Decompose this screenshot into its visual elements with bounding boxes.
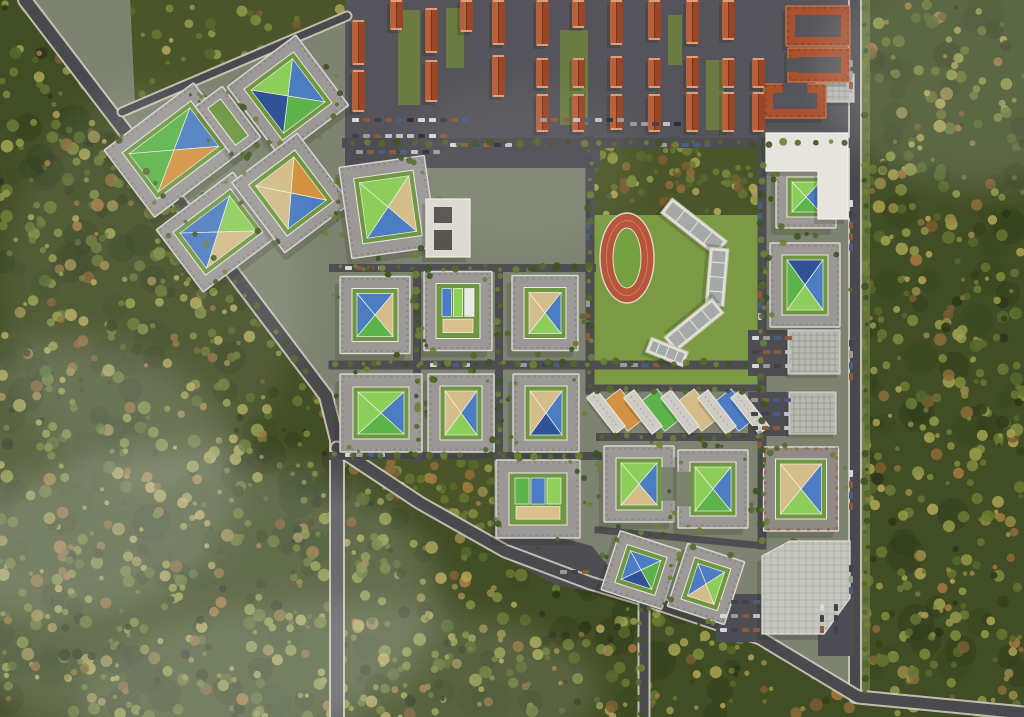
car: [396, 134, 403, 138]
car: [820, 626, 824, 633]
car: [849, 470, 853, 477]
car: [674, 122, 681, 126]
car: [731, 600, 738, 604]
car: [641, 122, 648, 126]
car: [751, 398, 758, 402]
townhouse-strip: [719, 92, 735, 135]
car: [849, 576, 853, 583]
car: [389, 150, 396, 154]
townhouse-strip: [719, 58, 735, 91]
car: [752, 336, 759, 340]
car: [849, 481, 853, 488]
car: [758, 202, 762, 209]
car: [452, 363, 459, 367]
car: [820, 615, 824, 622]
car: [752, 364, 759, 368]
car: [849, 200, 853, 207]
car: [582, 570, 589, 574]
car: [753, 628, 760, 632]
car: [345, 266, 352, 270]
car: [753, 600, 760, 604]
townhouse-strip: [719, 0, 735, 43]
car: [731, 614, 738, 618]
car: [849, 211, 853, 218]
car: [785, 336, 792, 340]
car: [849, 340, 853, 347]
red-courtyard-building: [760, 83, 826, 124]
townhouse-strip: [569, 0, 585, 31]
car: [418, 118, 425, 122]
car: [374, 134, 381, 138]
car: [720, 614, 727, 618]
townhouse-strip: [683, 92, 699, 135]
car: [742, 628, 749, 632]
car: [773, 398, 780, 402]
car: [620, 363, 627, 367]
building-right-block-r4: [753, 442, 848, 543]
townhouse-strip: [645, 94, 661, 135]
car: [834, 615, 838, 622]
car: [784, 426, 791, 430]
car: [356, 453, 363, 457]
car: [385, 134, 392, 138]
car: [682, 143, 689, 147]
car: [774, 350, 781, 354]
townhouse-strip: [422, 60, 438, 105]
car: [363, 118, 370, 122]
car: [731, 628, 738, 632]
car: [642, 363, 649, 367]
car: [849, 492, 853, 499]
townhouse-strip: [422, 8, 438, 56]
townhouse-strip: [607, 56, 623, 91]
car: [773, 426, 780, 430]
car: [849, 373, 853, 380]
car: [352, 118, 359, 122]
car: [834, 626, 838, 633]
car: [753, 614, 760, 618]
townhouse-strip: [749, 92, 765, 135]
car: [849, 362, 853, 369]
car: [617, 118, 624, 122]
building-grid-block-b2: [415, 368, 504, 460]
car: [378, 150, 385, 154]
building-right-block-r2: [758, 233, 853, 338]
townhouse-strip: [533, 58, 549, 91]
car: [374, 118, 381, 122]
car: [785, 364, 792, 368]
building-grid-block-a3: [505, 266, 591, 358]
building-east-block-e1: [595, 441, 685, 535]
fog-patch: [0, 90, 300, 490]
car: [758, 302, 762, 309]
townhouse-strip: [489, 0, 505, 48]
car: [849, 244, 853, 251]
car: [774, 336, 781, 340]
car: [762, 426, 769, 430]
building-grid-block-b3: [506, 361, 587, 459]
car: [763, 364, 770, 368]
car: [742, 600, 749, 604]
car: [367, 150, 374, 154]
car: [752, 350, 759, 354]
car: [773, 412, 780, 416]
car: [849, 233, 853, 240]
fog-patch: [400, 90, 640, 250]
townhouse-strip: [645, 0, 661, 43]
townhouse-strip: [749, 58, 765, 91]
car: [849, 587, 853, 594]
car: [849, 351, 853, 358]
building-east-block-e2: [667, 437, 755, 535]
townhouse-strip: [349, 70, 365, 115]
car: [785, 350, 792, 354]
townhouse-strip: [683, 56, 699, 91]
car: [571, 570, 578, 574]
townhouse-strip: [533, 0, 549, 49]
townhouse-strip: [387, 0, 403, 33]
car: [720, 628, 727, 632]
masterplan-aerial-render: [0, 0, 1024, 717]
car: [396, 118, 403, 122]
car: [652, 122, 659, 126]
car: [720, 600, 727, 604]
car: [763, 336, 770, 340]
building-grid-block-a1: [332, 267, 421, 367]
car: [751, 426, 758, 430]
car: [820, 604, 824, 611]
building-gray-grid: [785, 330, 840, 378]
car: [363, 134, 370, 138]
stadium: [600, 213, 654, 303]
car: [758, 213, 762, 220]
townhouse-strip: [645, 58, 661, 91]
car: [774, 364, 781, 368]
car: [849, 222, 853, 229]
building-south-block-c7: [486, 455, 592, 549]
townhouse-strip: [569, 58, 585, 91]
car: [849, 565, 853, 572]
car: [385, 118, 392, 122]
car: [742, 614, 749, 618]
building-grid-block-a2: [414, 272, 503, 359]
building-gray-grid: [786, 392, 836, 438]
car: [758, 291, 762, 298]
townhouse-strip: [457, 0, 473, 35]
townhouse-strip: [349, 20, 365, 68]
car: [762, 412, 769, 416]
townhouse-strip: [607, 0, 623, 48]
aerial-canvas: [0, 0, 1024, 717]
car: [663, 122, 670, 126]
car: [784, 412, 791, 416]
car: [407, 118, 414, 122]
car: [849, 503, 853, 510]
car: [356, 150, 363, 154]
car: [834, 604, 838, 611]
car: [784, 398, 791, 402]
car: [352, 134, 359, 138]
car: [693, 143, 700, 147]
car: [763, 350, 770, 354]
car: [560, 570, 567, 574]
townhouse-strip: [683, 0, 699, 47]
car: [630, 122, 637, 126]
car: [751, 412, 758, 416]
